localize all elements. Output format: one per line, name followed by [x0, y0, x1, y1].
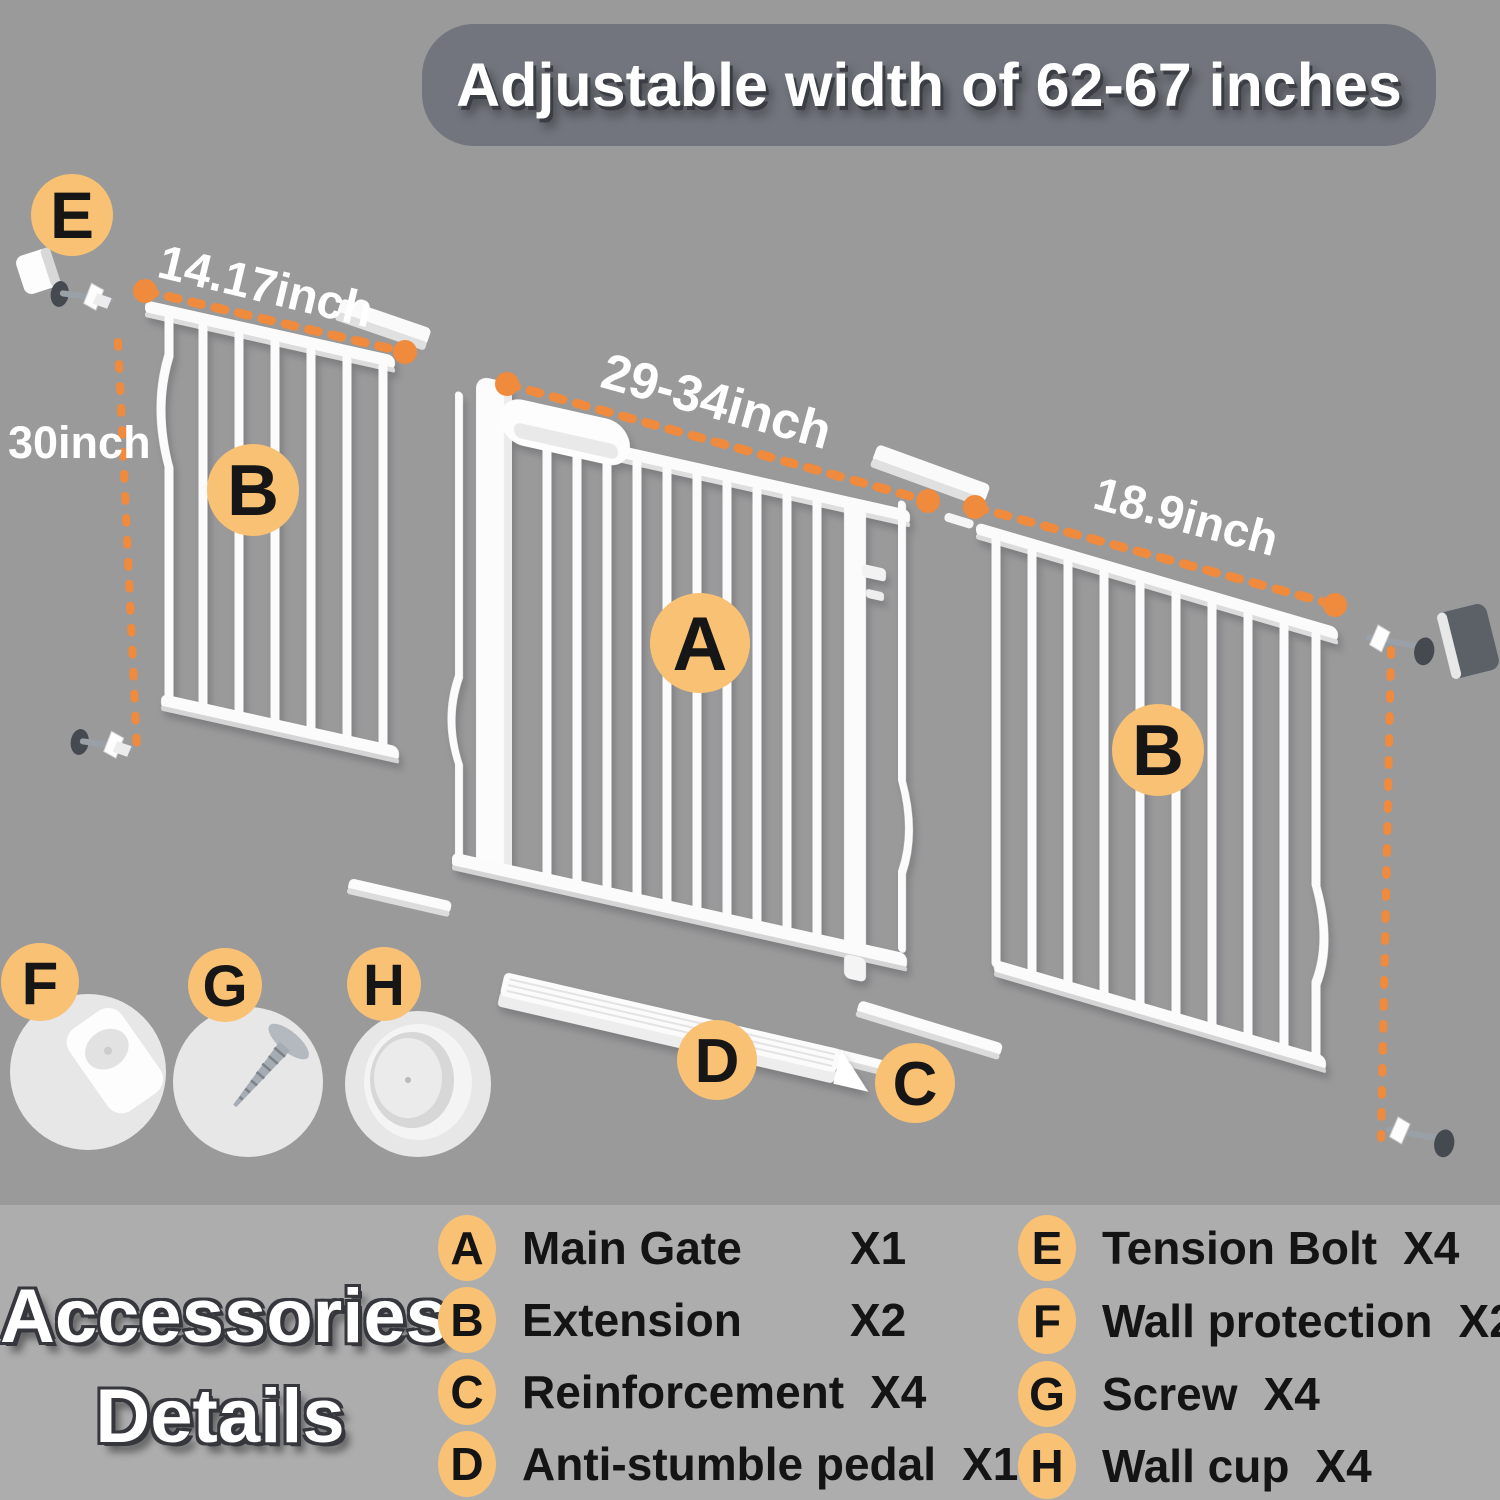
accessories-panel: Accessories Details A Main Gate X1 B Ext… [0, 1205, 1500, 1500]
svg-text:G: G [202, 954, 247, 1019]
reinforcement-bar [346, 878, 452, 917]
tension-bolt-icon [1363, 602, 1500, 680]
svg-text:A: A [673, 602, 728, 687]
svg-text:D: D [695, 1027, 740, 1096]
legend-label: Wall cup [1102, 1439, 1289, 1493]
legend-item-wall-cup: H Wall cup X4 [1018, 1433, 1372, 1499]
badge-reinforcement: C [875, 1043, 955, 1123]
badge-main-gate: A [650, 593, 750, 693]
legend-item-tension-bolt: E Tension Bolt X4 [1018, 1215, 1459, 1281]
legend-label: Wall protection [1102, 1294, 1433, 1348]
legend-label: Anti-stumble pedal [522, 1437, 936, 1491]
legend-count: X1 [962, 1437, 1018, 1491]
product-infographic: Adjustable width of 62-67 inches [0, 0, 1500, 1500]
dimension-label-right-width: 18.9inch [1089, 466, 1284, 566]
svg-text:C: C [893, 1050, 938, 1119]
extension-panel-right [976, 522, 1338, 1077]
legend-item-main-gate: A Main Gate X1 [438, 1215, 906, 1281]
tension-bolt-icon [14, 247, 115, 315]
svg-text:B: B [1132, 711, 1184, 791]
legend-badge: F [1018, 1288, 1076, 1354]
legend-badge: C [438, 1359, 496, 1425]
svg-text:H: H [363, 953, 405, 1018]
legend-count: X2 [850, 1293, 906, 1347]
legend-label: Screw [1102, 1367, 1238, 1421]
badge-tension-bolt: E [31, 174, 113, 256]
legend-label: Extension [522, 1293, 824, 1347]
legend-count: X2 [1459, 1294, 1500, 1348]
legend-count: X4 [870, 1365, 926, 1419]
tension-bolt-icon [69, 726, 135, 762]
legend-badge: A [438, 1215, 496, 1281]
svg-text:F: F [22, 950, 59, 1017]
legend-badge: H [1018, 1433, 1076, 1499]
screw-thumb: G [173, 948, 323, 1157]
legend-badge: G [1018, 1361, 1076, 1427]
accessories-heading-line1: Accessories [0, 1267, 440, 1367]
legend-item-anti-stumble-pedal: D Anti-stumble pedal X1 [438, 1431, 1018, 1497]
accessories-heading: Accessories Details [0, 1267, 440, 1468]
legend-badge: B [438, 1287, 496, 1353]
wall-protection-thumb: F [1, 943, 170, 1150]
legend-item-screw: G Screw X4 [1018, 1361, 1320, 1427]
badge-anti-stumble-pedal: D [677, 1020, 757, 1100]
dimension-label-height: 30inch [8, 417, 151, 468]
badge-extension-right: B [1112, 704, 1204, 796]
legend-label: Reinforcement [522, 1365, 844, 1419]
legend-count: X4 [1315, 1439, 1371, 1493]
svg-text:E: E [50, 178, 94, 252]
legend-badge: E [1018, 1215, 1076, 1281]
legend-badge: D [438, 1431, 496, 1497]
legend-item-extension: B Extension X2 [438, 1287, 906, 1353]
legend-count: X1 [850, 1221, 906, 1275]
legend-item-wall-protection: F Wall protection X2 [1018, 1288, 1500, 1354]
legend-count: X4 [1403, 1221, 1459, 1275]
legend-label: Main Gate [522, 1221, 824, 1275]
tension-bolt-icon [1383, 1115, 1457, 1159]
wall-cup-thumb: H [345, 947, 491, 1157]
gate-diagram: 14.17inch 29-34inch 18.9inch 30inch E B … [0, 0, 1500, 1205]
svg-text:B: B [227, 451, 279, 531]
legend-label: Tension Bolt [1102, 1221, 1377, 1275]
legend-item-reinforcement: C Reinforcement X4 [438, 1359, 926, 1425]
legend-count: X4 [1264, 1367, 1320, 1421]
accessories-heading-line2: Details [0, 1367, 440, 1467]
badge-extension-left: B [207, 444, 299, 536]
